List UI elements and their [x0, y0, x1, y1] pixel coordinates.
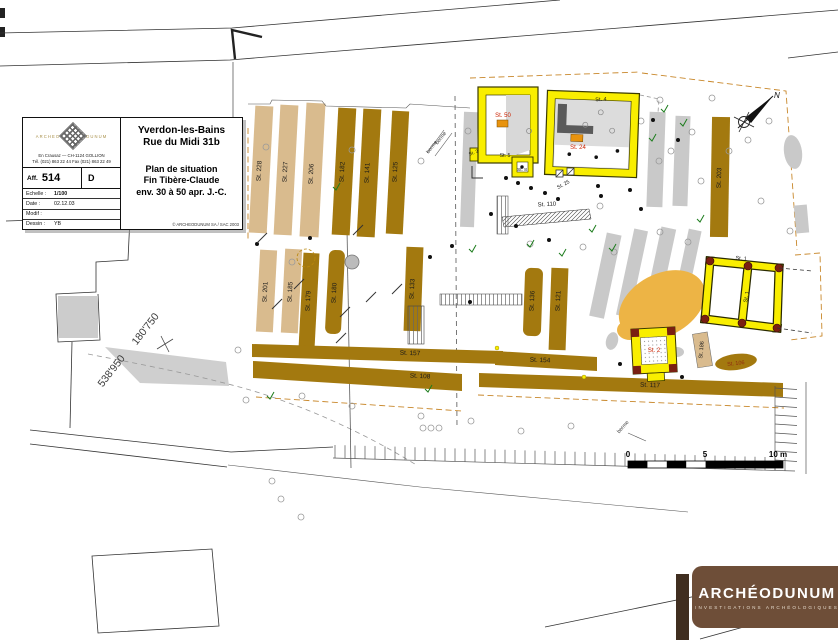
- site-plan: 180'750 538'950 berme berme berme N 0 5 …: [0, 0, 838, 640]
- structure-label: St. 117: [640, 382, 661, 390]
- revision-cell: D: [82, 168, 120, 188]
- north-arrow: N: [734, 91, 780, 132]
- brand-name: ARCHÉODUNUM: [698, 585, 835, 602]
- structure-label: St. 50: [495, 113, 511, 119]
- structure-label: St. 1: [743, 291, 751, 303]
- berme-label: berme: [616, 420, 630, 435]
- row-value: 1/100: [54, 191, 67, 197]
- structure-label: St. 203: [716, 167, 724, 188]
- structure-label: St. 206: [307, 163, 315, 184]
- site-line1: Yverdon-les-Bains: [121, 125, 242, 137]
- structure-label: St. 136: [528, 290, 536, 311]
- row-label: Date :: [26, 201, 54, 207]
- site-name: Yverdon-les-Bains Rue du Midi 31b: [121, 125, 242, 149]
- annex-st8: [512, 157, 533, 177]
- titleblock-row: Dessin :YB: [23, 220, 120, 229]
- structure-label: St. 201: [261, 281, 269, 302]
- structure-label: St. 4: [595, 97, 607, 104]
- title-block: ARCHEO DUNUM En Crausaz — CH-1124 GOLLIO…: [22, 117, 243, 230]
- structure-label: St. 179: [304, 290, 312, 311]
- structure-label: St. 25: [556, 179, 571, 191]
- info-rows: Echelle :1/100Date :02.12.03Modif :Dessi…: [23, 189, 120, 229]
- address-line2: Tél. (021) 863 22 44 Fax (021) 863 22 49: [23, 159, 120, 165]
- scale-ten-label: 10 m: [769, 450, 787, 459]
- plan-line3: env. 30 à 50 apr. J.-C.: [121, 187, 242, 198]
- coord-north-label: 538'950: [96, 353, 128, 390]
- titleblock-row: Modif :: [23, 210, 120, 220]
- diamond-logo-icon: [60, 123, 85, 148]
- scale-five-label: 5: [703, 450, 708, 459]
- yellow-spot: [495, 346, 499, 350]
- company-logo: ARCHEO DUNUM: [23, 121, 120, 151]
- coord-east-label: 180'750: [130, 311, 162, 348]
- row-label: Dessin :: [26, 221, 54, 227]
- yellow-spot: [582, 375, 586, 379]
- structure-label: St. 157: [400, 350, 421, 358]
- affair-number-cell: Aff. 514: [23, 168, 82, 188]
- title-block-right: Yverdon-les-Bains Rue du Midi 31b Plan d…: [121, 118, 242, 229]
- structure-label: St. 2: [648, 348, 661, 354]
- structure-label: St. 180: [330, 282, 338, 303]
- scale-bar: 0 5 10 m: [626, 450, 787, 468]
- structure-label: St. 8: [517, 167, 527, 173]
- structure-label: St. 125: [391, 161, 399, 182]
- affair-label: Aff.: [27, 175, 38, 182]
- plan-line2: Fin Tibère-Claude: [121, 175, 242, 186]
- titleblock-row: Echelle :1/100: [23, 189, 120, 199]
- plan-sheet: 180'750 538'950 berme berme berme N 0 5 …: [0, 0, 838, 640]
- row-label: Echelle :: [26, 191, 54, 197]
- structure-label: St. 228: [255, 160, 263, 181]
- affair-value: 514: [42, 172, 60, 184]
- logo-text-left: ARCHEO: [36, 134, 61, 139]
- structure-label: St. 110: [538, 201, 558, 208]
- copyright-note: © ARCHEODUNUM SA / SAC 2003: [172, 222, 239, 227]
- titleblock-row: Date :02.12.03: [23, 199, 120, 209]
- structure-label: St. 141: [363, 162, 371, 183]
- company-address: En Crausaz — CH-1124 GOLLION Tél. (021) …: [23, 153, 120, 164]
- brand-tagline: INVESTIGATIONS ARCHÉOLOGIQUES: [695, 605, 838, 610]
- row-value: YB: [54, 221, 61, 227]
- berme-label: berme: [434, 131, 448, 146]
- logo-text-right: DUNUM: [86, 134, 107, 139]
- brand-side-strip: [676, 574, 689, 640]
- plan-line1: Plan de situation: [121, 164, 242, 175]
- structure-label: St. 1: [735, 256, 747, 263]
- timber-building-st1: [701, 257, 812, 333]
- brand-logo: ARCHÉODUNUM INVESTIGATIONS ARCHÉOLOGIQUE…: [692, 566, 838, 628]
- structure-label: St. 121: [554, 290, 562, 311]
- title-block-left: ARCHEO DUNUM En Crausaz — CH-1124 GOLLIO…: [23, 118, 121, 229]
- site-line2: Rue du Midi 31b: [121, 137, 242, 149]
- building-st4: [545, 90, 640, 177]
- structure-label: St. 5: [500, 153, 511, 159]
- north-label: N: [774, 91, 780, 100]
- row-value: 02.12.03: [54, 201, 75, 207]
- plan-title: Plan de situation Fin Tibère-Claude env.…: [121, 164, 242, 198]
- structure-label: St. 133: [408, 278, 416, 299]
- structure-label: St. 185: [286, 281, 294, 302]
- pit-st2: [631, 327, 678, 382]
- structure-label: St. 108: [410, 372, 431, 380]
- scale-zero-label: 0: [626, 450, 631, 459]
- structure-label: St. 227: [281, 161, 289, 182]
- affair-row: Aff. 514 D: [23, 167, 120, 189]
- structure-label: St. 182: [338, 161, 346, 182]
- row-label: Modif :: [26, 211, 54, 217]
- structure-label: St. 154: [530, 357, 551, 365]
- structure-label: St. 24: [570, 145, 586, 151]
- gray-pit: [345, 255, 359, 269]
